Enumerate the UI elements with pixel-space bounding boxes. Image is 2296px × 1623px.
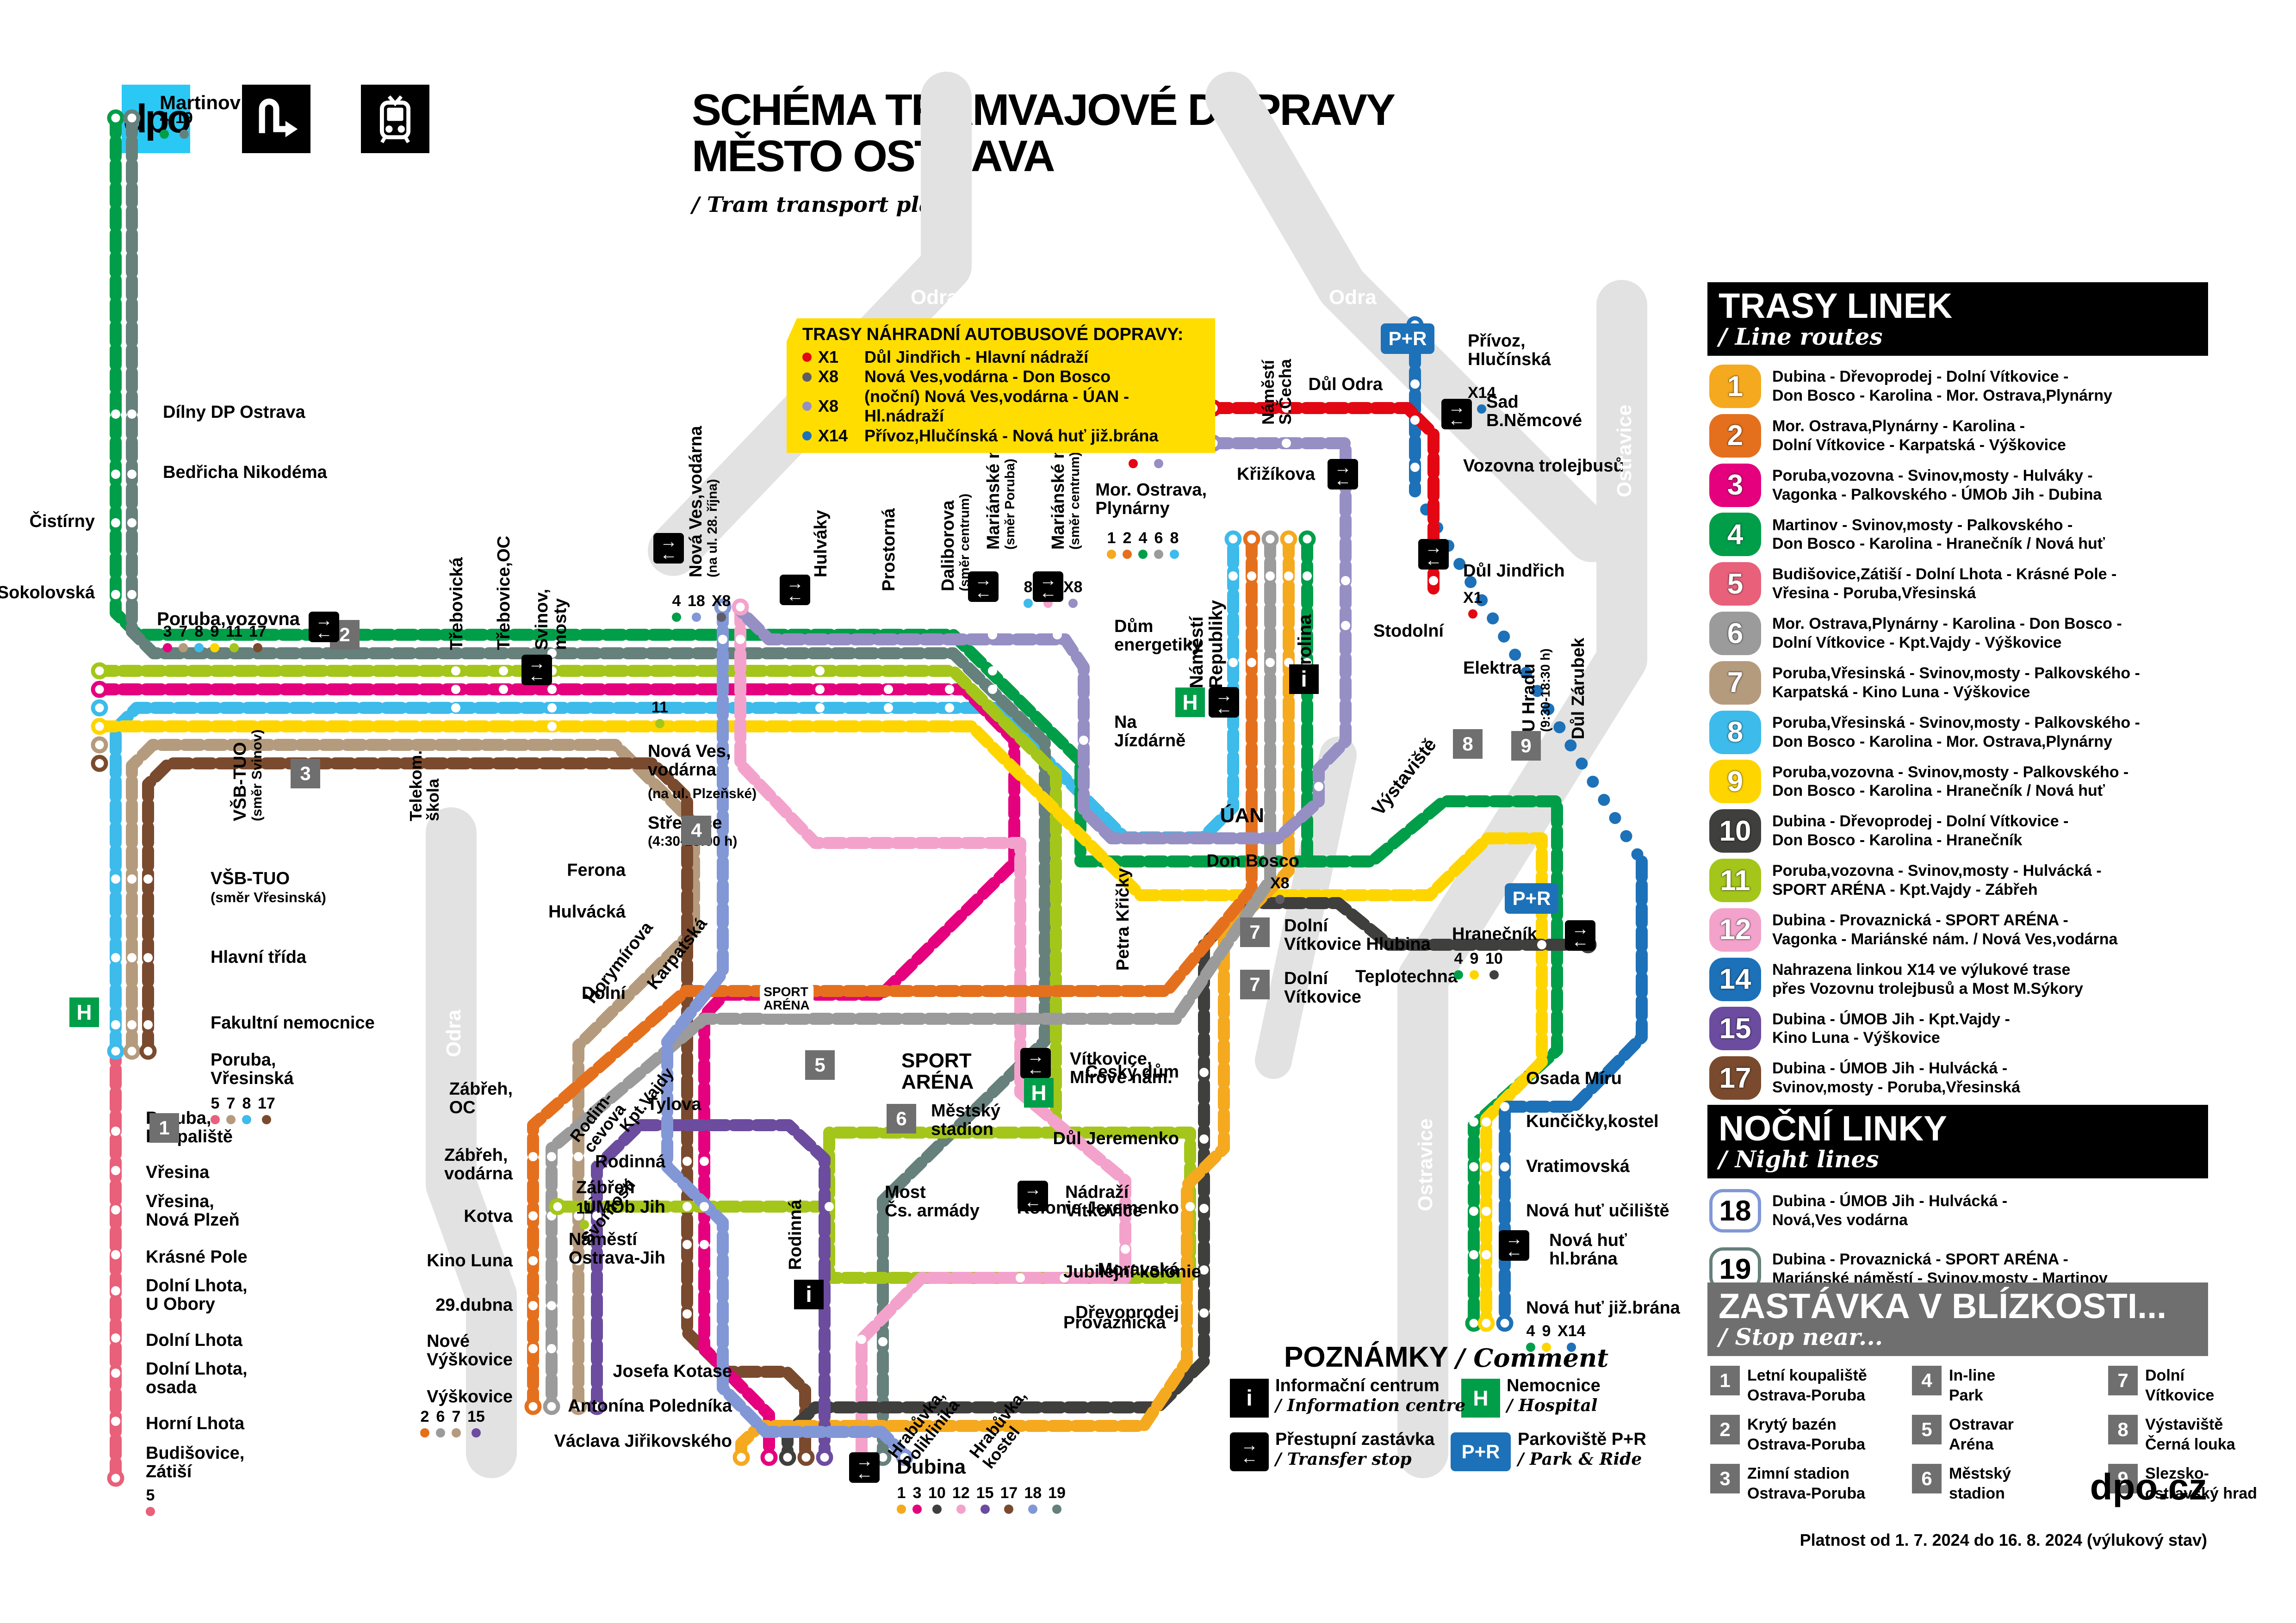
stop-label: Stodolní [1373, 622, 1444, 641]
stop-dot [815, 703, 825, 712]
line-color-dot [1028, 1505, 1037, 1514]
stop-dot [1410, 415, 1420, 425]
line-number-text: X1 [1463, 590, 1483, 606]
line-route-row: 15Dubina - ÚMOB Jih - Kpt.Vajdy - Kino L… [1709, 1007, 2010, 1050]
line-number-text: 12 [952, 1485, 970, 1501]
line-route-text: Poruba,Vřesinská - Svinov,mosty - Palkov… [1772, 664, 2140, 702]
note-label-main: Informační centrum [1275, 1376, 1465, 1396]
line-route-row: 1Dubina - Dřevoprodej - Dolní Vítkovice … [1709, 365, 2112, 408]
stop-dot [547, 703, 557, 712]
stop-label: Hlavní třída [211, 948, 306, 967]
line-number: X1 [1463, 590, 1483, 619]
transfer-icon: →← [1499, 1230, 1529, 1261]
line-number-text: 8 [242, 1096, 251, 1111]
line-route-text: Dubina - Provaznická - SPORT ARÉNA - Vag… [1772, 911, 2117, 949]
stop-dot [528, 1301, 538, 1310]
line-color-dot [1123, 550, 1132, 559]
line-number: 2 [1123, 530, 1132, 559]
line-color-dot [163, 643, 172, 652]
stop-dot [1199, 1134, 1209, 1144]
stop-label: Odra [911, 287, 958, 308]
terminal-stop [93, 683, 106, 696]
stop-dot [1199, 1068, 1209, 1077]
stop-dot [111, 1369, 120, 1378]
stop-label: Krásné Pole [146, 1248, 248, 1267]
line-number: X14 [1468, 385, 1496, 414]
stop-dot [825, 1202, 834, 1211]
line-number-text: 11 [652, 700, 668, 715]
stop-dot [1053, 666, 1062, 675]
stop-label: Prostorná [880, 508, 899, 591]
line-color-dot [580, 1220, 589, 1229]
stop-near-item: 2Krytý bazén Ostrava-Poruba [1710, 1415, 1865, 1454]
transfer-icon: →← [1020, 1048, 1051, 1078]
transfer-icon: →← [1033, 571, 1063, 602]
stop-label: (směr Poruba) [1003, 458, 1017, 550]
stop-label: Městský stadion [931, 1102, 1000, 1139]
stop-label: Hulváky [812, 510, 831, 577]
stop-dot [1469, 1162, 1478, 1171]
line-color-dot [672, 613, 681, 622]
line-number: 18 [688, 593, 705, 622]
line-badge: 6 [1709, 612, 1761, 655]
stop-label: Josefa Kotase [613, 1363, 732, 1381]
line-number-text: 5 [146, 1487, 155, 1503]
stop-dot [945, 703, 954, 712]
line-number-text: 17 [249, 624, 267, 639]
stop-label: Budišovice, Zátiší [146, 1444, 244, 1481]
stop-dot [988, 630, 997, 639]
line-number-row: 11 [576, 1201, 593, 1229]
stop-label: Fakultní nemocnice [211, 1014, 375, 1033]
stop-dot [1121, 1245, 1130, 1254]
line-color-dot [1170, 550, 1179, 559]
line-color-dot [230, 643, 239, 652]
bus-line-color-dot [802, 353, 812, 362]
stop-label: Křižíkova [1237, 465, 1315, 484]
line-number-row: X14 [1468, 385, 1496, 414]
line-number-row: 5 [146, 1487, 155, 1516]
stop-label: ÚAN [1220, 805, 1264, 826]
line-color-dot [242, 1115, 251, 1124]
line-number: 7 [452, 1409, 461, 1437]
stop-label: Dřevoprodej [1075, 1304, 1179, 1322]
transfer-icon: →← [1418, 539, 1449, 570]
line-number-text: 3 [913, 1485, 922, 1501]
line-route-row: 2Mor. Ostrava,Plynárny - Karolina - Doln… [1709, 414, 2066, 458]
stop-label: Svinov, mosty [533, 589, 570, 650]
line-number-text: 7 [179, 624, 188, 639]
line-number-text: 1 [897, 1485, 906, 1501]
line-color-dot [211, 1115, 220, 1124]
stop-near-text: In-line Park [1949, 1366, 1995, 1405]
line-route-row: 7Poruba,Vřesinská - Svinov,mosty - Palko… [1709, 661, 2140, 705]
line-number: 19 [175, 110, 193, 139]
stop-dot [700, 1157, 709, 1166]
line-route-text: Dubina - ÚMOB Jih - Hulvácká - Svinov,mo… [1772, 1059, 2020, 1097]
stop-dot [111, 953, 120, 962]
stop-label: Nová huť učiliště [1526, 1202, 1669, 1220]
line-number-text: X8 [712, 593, 731, 609]
stop-dot [127, 470, 137, 479]
line-number: 4 [1454, 951, 1463, 979]
line-number: 6 [436, 1409, 445, 1437]
stop-near-header: ZASTÁVKA V BLÍZKOSTI... / Stop near... [1707, 1282, 2208, 1356]
stop-label: Tylova [647, 1096, 701, 1114]
stop-near-badge: 4 [682, 816, 711, 845]
note-label: Parkoviště P+R/ Park & Ride [1518, 1430, 1646, 1469]
replacement-bus-box: TRASY NÁHRADNÍ AUTOBUSOVÉ DOPRAVY: X1Důl… [787, 318, 1215, 453]
stop-label: Důl Odra [1309, 376, 1383, 394]
line-number-text: 7 [227, 1096, 236, 1111]
line-number-text: 4 [672, 593, 681, 609]
line-number-text: 4 [1139, 530, 1148, 546]
line-number-text: 9 [1470, 951, 1479, 966]
line-number-text: 4 [160, 110, 169, 126]
stop-label: (směr centrum) [1068, 452, 1082, 550]
stop-dot [1229, 571, 1238, 581]
stop-label: Vřesina, Nová Plzeň [146, 1193, 240, 1229]
info-icon: i [794, 1280, 824, 1309]
line-color-dot [1068, 599, 1078, 608]
stop-dot [1429, 576, 1438, 585]
stop-dot [736, 635, 745, 644]
stop-label: Odra [1329, 287, 1377, 308]
line-number: 6 [1154, 530, 1163, 559]
line-number-text: 4 [1527, 1323, 1535, 1339]
line-number-text: 17 [258, 1096, 275, 1111]
stop-label: Zábřeh, vodárna [444, 1146, 513, 1183]
stop-label: Ferona [567, 861, 626, 880]
terminal-stop [1498, 1317, 1511, 1330]
note-label-main: Parkoviště P+R [1518, 1430, 1646, 1450]
line-route-row: 6Mor. Ostrava,Plynárny - Karolina - Don … [1709, 612, 2122, 655]
bus-line-color-dot [802, 372, 812, 382]
stop-dot [884, 685, 893, 694]
stop-label: Petra Křičky [1114, 868, 1133, 971]
stop-dot [988, 685, 997, 694]
stop-label: Důl Jindřich [1463, 562, 1565, 581]
terminal-stop [527, 1400, 540, 1413]
stop-near-text: Městský stadion [1949, 1464, 2011, 1503]
line-badge: 11 [1709, 859, 1761, 902]
stop-dot [683, 1240, 692, 1249]
stop-dot [1247, 571, 1256, 581]
line-number-text: 4 [1454, 951, 1463, 966]
line-badge: 1 [1709, 365, 1761, 408]
stop-dot [127, 874, 137, 884]
stop-dot [574, 1152, 583, 1161]
stop-dot [815, 666, 825, 675]
line-number-row: 11 [652, 700, 668, 728]
stop-dot [528, 1152, 538, 1161]
stop-dot [1469, 1074, 1478, 1084]
stop-dot [127, 409, 137, 419]
line-number-row: 37891117 [163, 624, 267, 652]
line-color-dot [1489, 970, 1499, 979]
stop-near-item: 4In-line Park [1912, 1366, 1995, 1405]
line-color-dot [262, 1115, 271, 1124]
stop-dot [815, 685, 825, 694]
line-number: 9 [1470, 951, 1479, 979]
stop-near-number: 4 [1912, 1366, 1942, 1395]
stop-dot [547, 1344, 556, 1353]
stop-label: Antonína Poledníka [568, 1397, 732, 1416]
line-color-dot [226, 1115, 236, 1124]
line-number: 5 [146, 1487, 155, 1516]
line-badge: 14 [1709, 958, 1761, 1001]
stop-dot [451, 703, 460, 712]
stop-label: Most Čs. armády [885, 1183, 980, 1220]
line-number: 17 [1000, 1485, 1018, 1514]
line-route-row: 8Poruba,Vřesinská - Svinov,mosty - Palko… [1709, 711, 2140, 754]
note-label: Nemocnice/ Hospital [1507, 1376, 1601, 1415]
line-number-text: 11 [576, 1201, 593, 1216]
line-color-dot [897, 1505, 906, 1514]
line-number: 1 [897, 1485, 906, 1514]
stop-label: Hranečník [1452, 925, 1537, 944]
stop-dot [988, 666, 997, 675]
stop-dot [1482, 1117, 1491, 1127]
line-color-dot [194, 643, 204, 652]
line-color-dot [1477, 404, 1486, 414]
stop-near-item: 3Zimní stadion Ostrava-Poruba [1710, 1464, 1865, 1503]
hospital-icon: H [69, 997, 99, 1027]
stop-dot [111, 518, 120, 527]
line-color-dot [436, 1428, 445, 1437]
line-number: 15 [467, 1409, 485, 1437]
line-number: 4 [160, 110, 169, 139]
stop-label: Na Jízdárně [1114, 713, 1185, 750]
terminal-stop [93, 738, 106, 751]
stop-near-item: 8Výstaviště Černá louka [2108, 1415, 2235, 1454]
line-number-text: 15 [467, 1409, 485, 1425]
park-and-ride-icon: P+R [1381, 323, 1434, 354]
line-color-dot [1154, 459, 1163, 468]
stop-dot [111, 1166, 120, 1175]
stop-dot [700, 1240, 709, 1249]
stop-label: Sad B.Němcové [1486, 393, 1582, 430]
stop-label: Dílny DP Ostrava [163, 403, 305, 422]
stop-dot [127, 953, 137, 962]
line-route-row: 3Poruba,vozovna - Svinov,mosty - Hulváky… [1709, 464, 2102, 507]
line-color-dot [472, 1428, 481, 1437]
stop-label: Nová huť již.brána [1526, 1299, 1680, 1318]
stop-dot [857, 1335, 866, 1344]
line-route-text: Budišovice,Zátiší - Dolní Lhota - Krásné… [1772, 565, 2116, 603]
stop-label: Náměstí S.Čecha [1260, 359, 1294, 425]
bus-line-code: X8 [818, 367, 858, 386]
terminal-stop [1282, 533, 1295, 545]
stop-dot [111, 874, 120, 884]
line-color-dot [420, 1428, 429, 1437]
replacement-bus-route: X8(noční) Nová Ves,vodárna - ÚAN - Hl.ná… [802, 387, 1206, 426]
stop-label: Vratimovská [1526, 1158, 1630, 1176]
stop-near-number: 7 [2108, 1366, 2138, 1395]
stop-label: Telekom. škola [407, 750, 442, 821]
stop-label: Mor. Ostrava, Plynárny [1095, 481, 1207, 518]
stop-dot [111, 1333, 120, 1343]
stop-label: Dolní Vítkovice [1284, 970, 1361, 1006]
stop-label: Kunčičky,kostel [1526, 1113, 1659, 1131]
line-badge: 5 [1709, 562, 1761, 606]
stop-label: Důl Jeremenko [1053, 1130, 1179, 1148]
line-color-dot [692, 613, 701, 622]
notes-title: POZNÁMKY / Comment [1284, 1341, 1608, 1374]
line-color-dot [956, 1505, 966, 1514]
stop-dot [451, 666, 460, 675]
stop-dot [528, 1256, 538, 1265]
stop-label: (směr Vřesinská) [211, 890, 326, 905]
line-route-row: 9Poruba,vozovna - Svinov,mosty - Palkovs… [1709, 760, 2128, 803]
line-color-dot [210, 643, 219, 652]
line-color-dot [980, 1505, 990, 1514]
line-number-text: 11 [226, 624, 242, 639]
line-number-text: 15 [976, 1485, 994, 1501]
park-and-ride-icon: P+R [1451, 1432, 1511, 1471]
stop-dot [451, 685, 460, 694]
terminal-stop [818, 1451, 831, 1464]
stop-dot [1500, 1102, 1509, 1111]
bus-line-code: X8 [818, 396, 858, 416]
stop-dot [1053, 649, 1062, 658]
line-number-text: 8 [1024, 579, 1033, 595]
stop-label: VŠB-TUO [231, 742, 250, 821]
line-routes-subtitle: / Line routes [1719, 324, 2197, 349]
line-color-dot [1138, 550, 1148, 559]
stop-dot [499, 666, 508, 675]
replacement-bus-route: X8Nová Ves,vodárna - Don Bosco [802, 367, 1206, 386]
stop-label: Vřesina [146, 1164, 209, 1182]
stop-label: Daliborova [939, 501, 958, 591]
stop-label: Sokolovská [0, 584, 95, 602]
bus-line-color-dot [802, 402, 812, 411]
stop-label: Náměstí Ostrava-Jih [569, 1231, 665, 1267]
stop-dot [547, 1301, 556, 1310]
stop-dot [878, 1119, 887, 1128]
line-number-text: 9 [211, 624, 219, 639]
line-routes-title: TRASY LINEK [1719, 289, 2197, 324]
stop-dot [1185, 1202, 1195, 1211]
stop-dot [111, 1127, 120, 1136]
line-route-text: Dubina - Dřevoprodej - Dolní Vítkovice -… [1772, 367, 2112, 405]
stop-dot [683, 1157, 692, 1166]
stop-label: Teplotechna [1355, 968, 1458, 986]
stop-label: (9:30-18:30 h) [1539, 648, 1552, 732]
stop-near-number: 8 [2108, 1415, 2138, 1444]
stop-label: VŠB-TUO [211, 870, 290, 888]
transfer-icon: →← [1018, 1181, 1048, 1211]
line-route-text: Poruba,vozovna - Svinov,mosty - Hulváky … [1772, 466, 2102, 504]
transfer-icon: →← [1565, 920, 1595, 951]
line-number-text: 18 [688, 593, 705, 609]
terminal-stop [125, 112, 138, 124]
line-number: 4 [672, 593, 681, 622]
stop-label: Český dům [1085, 1063, 1179, 1082]
terminal-stop [800, 1451, 813, 1464]
stop-near-badge: 5 [805, 1050, 835, 1080]
stop-label: (na ul. 28. října) [706, 479, 720, 577]
line-number: X8 [1270, 875, 1290, 904]
stop-dot [1282, 439, 1291, 448]
stop-dot [1303, 571, 1312, 581]
line-color-dot [1468, 609, 1477, 619]
line-number: 4 [1138, 530, 1148, 559]
line-color-dot [655, 719, 664, 728]
park-and-ride-icon: P+R [1505, 883, 1558, 914]
stop-dot [1016, 1273, 1025, 1282]
line-route-text: Poruba,Vřesinská - Svinov,mosty - Palkov… [1772, 713, 2140, 751]
terminal-stop [763, 1451, 776, 1464]
stop-label: Čistírny [30, 513, 95, 531]
bus-route-text: Nová Ves,vodárna - Don Bosco [864, 367, 1111, 386]
bus-line-code: X14 [818, 426, 858, 446]
stop-dot [111, 470, 120, 479]
stop-dot [528, 1344, 538, 1353]
stop-dot [1341, 576, 1350, 585]
line-badge: 10 [1709, 809, 1761, 853]
line-number: X8 [712, 593, 731, 622]
stop-label: Rodinná [595, 1153, 665, 1171]
line-route-text: Poruba,vozovna - Svinov,mosty - Palkovsk… [1772, 763, 2128, 801]
stop-dot [1469, 1250, 1478, 1259]
line-color-dot [253, 643, 262, 652]
note-label-main: Přestupní zastávka [1275, 1430, 1434, 1450]
line-number-text: 19 [1048, 1485, 1066, 1501]
stop-dot [1314, 782, 1323, 791]
line-number: 7 [179, 624, 188, 652]
line-color-dot [179, 643, 188, 652]
stop-dot [1537, 940, 1546, 949]
hospital-icon: H [1175, 688, 1205, 717]
stop-dot [700, 1202, 709, 1211]
stop-near-item: 6Městský stadion [1912, 1464, 2011, 1503]
notes-subtitle: / Comment [1456, 1343, 1608, 1373]
line-number: 5 [211, 1096, 220, 1124]
stop-near-item: 7Dolní Vítkovice [2108, 1366, 2214, 1405]
hospital-icon: H [1024, 1078, 1054, 1108]
stop-dot [127, 1020, 137, 1029]
line-color-dot [1107, 550, 1116, 559]
note-label: Přestupní zastávka/ Transfer stop [1275, 1430, 1434, 1469]
line-color-dot [1129, 459, 1138, 468]
line-number: 17 [249, 624, 267, 652]
line-route-text: Dubina - Dřevoprodej - Dolní Vítkovice -… [1772, 812, 2068, 850]
stop-label: Nová Ves, vodárna [648, 743, 731, 779]
line-number: 15 [976, 1485, 994, 1514]
line-color-dot [717, 613, 726, 622]
stop-dot [683, 1202, 692, 1211]
stop-label: (na ul. Plzeňské) [648, 787, 757, 801]
terminal-stop [93, 701, 106, 714]
stop-dot [1482, 1074, 1491, 1084]
stop-dot [718, 635, 727, 644]
line-number-row: 419 [160, 110, 193, 139]
info-icon: i [1289, 664, 1319, 694]
transfer-icon: →← [849, 1452, 880, 1483]
stop-label: Bedřicha Nikodéma [163, 464, 327, 482]
line-route-text: Mor. Ostrava,Plynárny - Karolina - Dolní… [1772, 417, 2066, 455]
terminal-stop [781, 1451, 794, 1464]
stop-label: Dolní Lhota, osada [146, 1360, 248, 1397]
line-number-row: 418X8 [672, 593, 731, 622]
stop-near-text: Zimní stadion Ostrava-Poruba [1747, 1464, 1865, 1503]
stop-dot [499, 685, 508, 694]
stop-dot [1410, 379, 1420, 389]
line-number-text: 10 [1485, 951, 1503, 966]
line-number: 10 [928, 1485, 946, 1514]
stop-label: 29.dubna [435, 1296, 513, 1315]
